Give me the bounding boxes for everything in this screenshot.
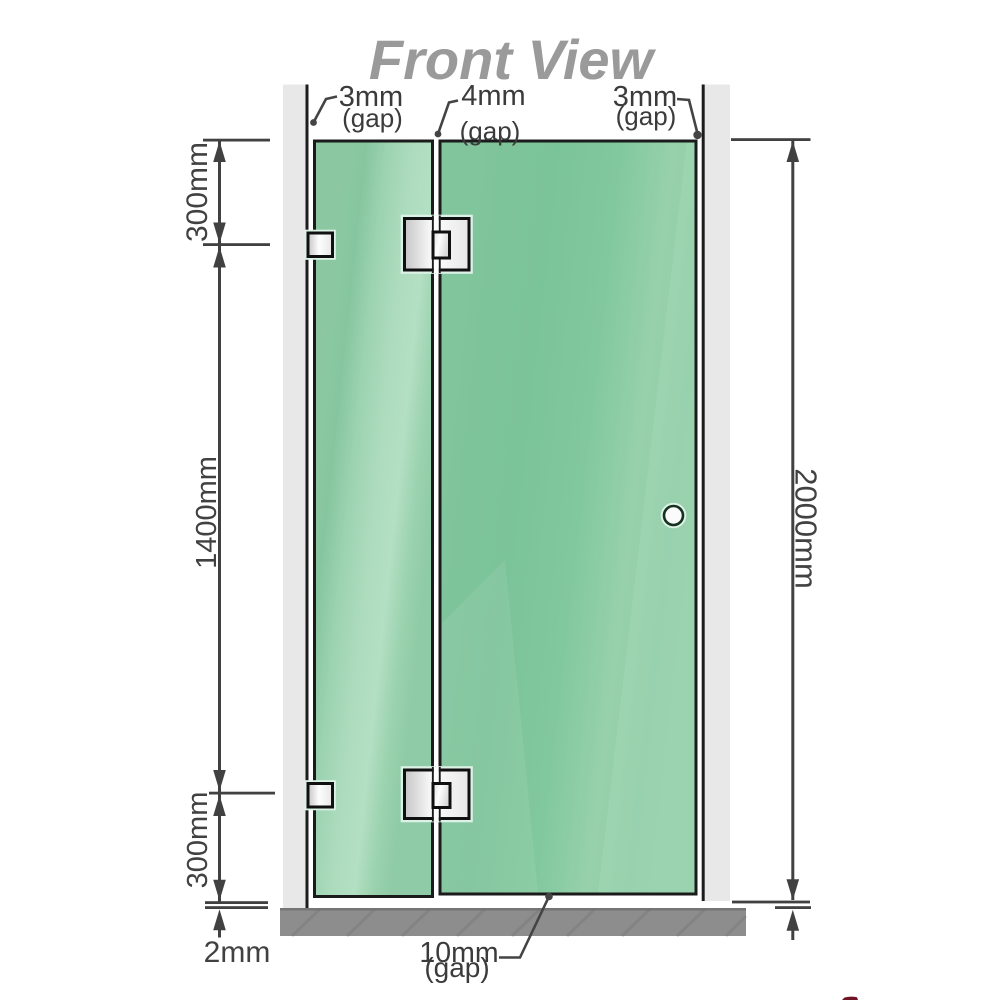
svg-text:2mm: 2mm [204, 936, 271, 969]
svg-text:1400mm: 1400mm [191, 456, 223, 569]
svg-text:4mm: 4mm [461, 80, 525, 112]
svg-text:(gap): (gap) [342, 103, 403, 133]
svg-text:(gap): (gap) [460, 116, 521, 146]
svg-text:(gap): (gap) [616, 101, 677, 131]
svg-text:2000mm: 2000mm [789, 468, 824, 589]
svg-text:(gap): (gap) [424, 952, 489, 983]
svg-text:300mm: 300mm [181, 142, 214, 242]
svg-text:300mm: 300mm [182, 792, 214, 889]
